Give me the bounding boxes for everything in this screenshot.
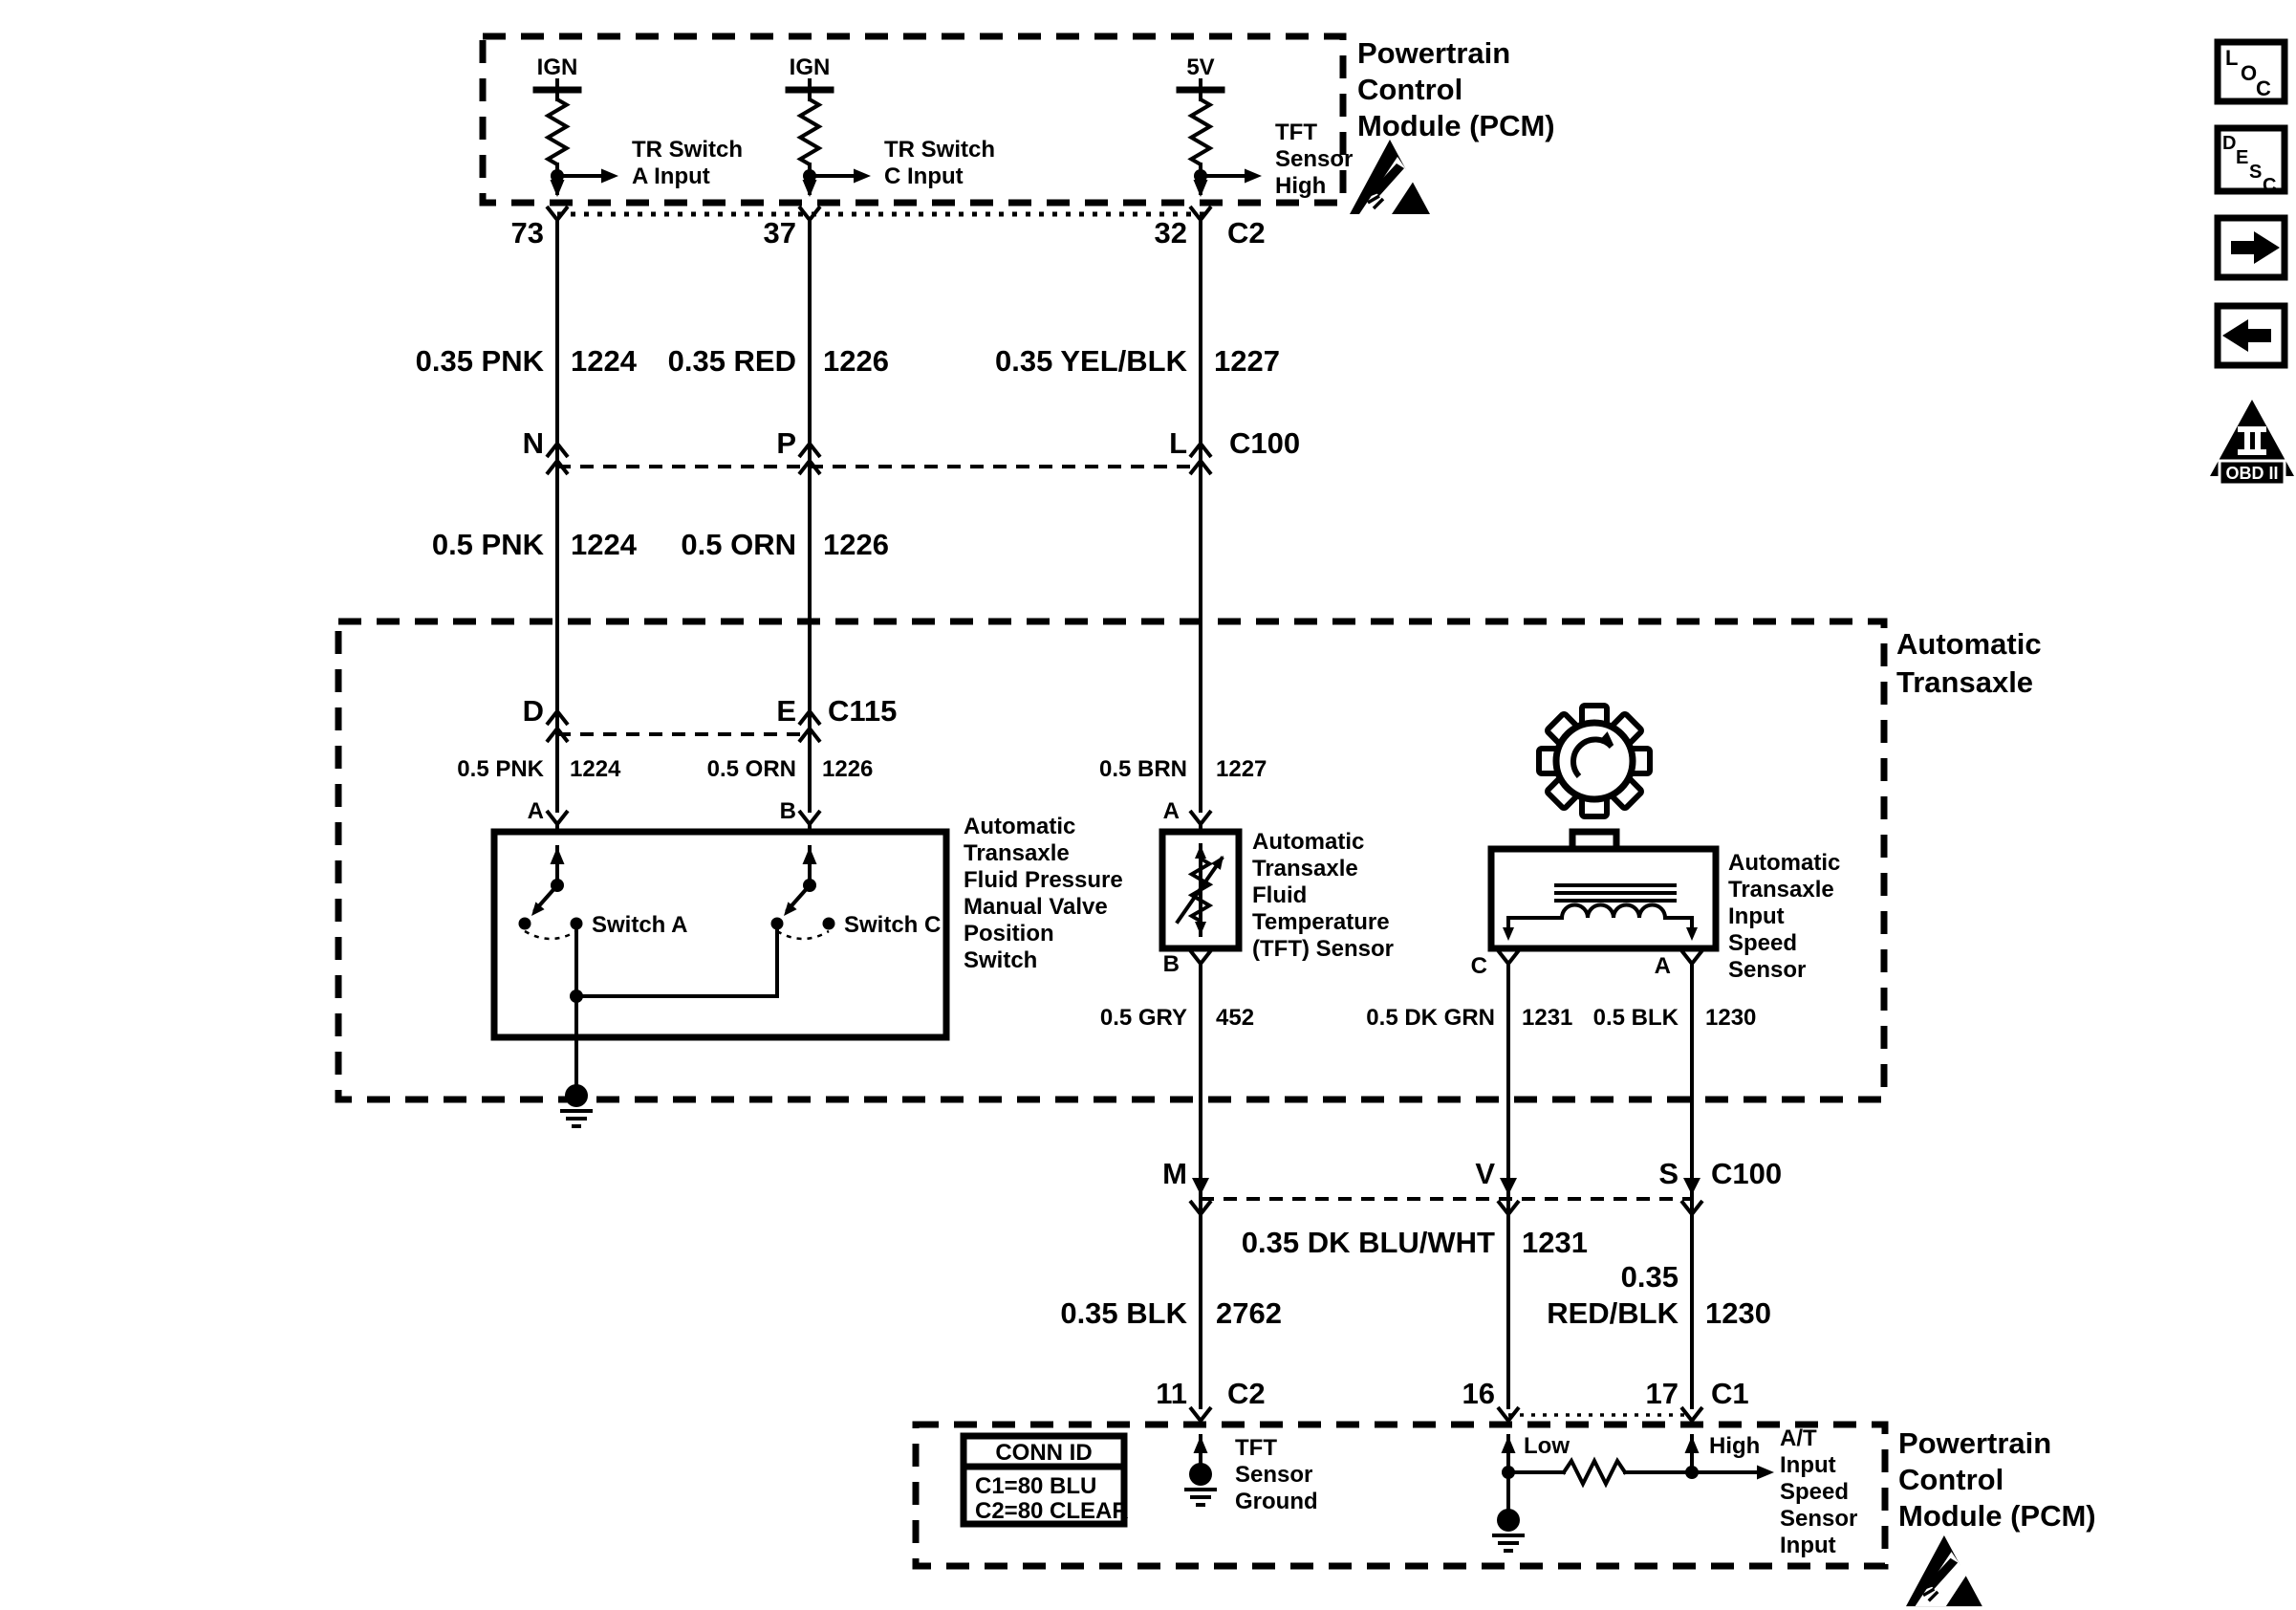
wire-color-label: 0.5 PNK (432, 528, 545, 561)
ground-icon (1492, 1509, 1525, 1551)
wire-color-label: 0.5 PNK (457, 756, 544, 782)
component-label-line: Manual Valve (964, 894, 1108, 920)
connector-id: C2 (1227, 216, 1266, 250)
automatic-transaxle-assembly: Automatic Transaxle D E C115 0.5 PNK 122… (338, 621, 2042, 1126)
wire-color-label: 0.35 PNK (416, 344, 545, 378)
conn-table-row: C1=80 BLU (975, 1473, 1096, 1499)
signal-label: Sensor (1235, 1462, 1312, 1488)
wire-color-label: 0.5 ORN (707, 756, 796, 782)
pin-letter: E (776, 694, 796, 728)
resistor-symbol (800, 99, 818, 164)
previous-button[interactable] (2218, 306, 2285, 365)
supply-label: IGN (537, 54, 578, 80)
pin-number: 17 (1646, 1377, 1679, 1410)
fluid-pressure-switch: A B Switch A Switch C (494, 798, 1123, 1126)
obd2-label: OBD II (2225, 464, 2278, 483)
component-label-line: Automatic (1252, 829, 1364, 855)
pin-number: 73 (511, 216, 544, 250)
wire-circuit-label: 1227 (1216, 756, 1267, 782)
pin-number: 16 (1462, 1377, 1495, 1410)
connector-id: C100 (1229, 426, 1300, 460)
pcm-bottom-name-line: Module (PCM) (1898, 1499, 2096, 1533)
pin-letter: S (1658, 1157, 1679, 1190)
obd2-badge: OBD II (2210, 400, 2294, 485)
esd-warning-icon (1906, 1535, 1982, 1606)
loc-letter: O (2241, 61, 2257, 85)
wire-circuit-label: 1226 (823, 528, 889, 561)
pin-letter: P (776, 426, 796, 460)
switch-label: Switch A (592, 912, 687, 938)
pin-letter: L (1169, 426, 1187, 460)
switch-label: Switch C (844, 912, 941, 938)
signal-label: TFT (1275, 120, 1317, 145)
wire-circuit-label: 2762 (1216, 1296, 1282, 1330)
ground-icon (560, 1084, 593, 1126)
component-label-line: Transaxle (1728, 877, 1834, 903)
conn-table-header: CONN ID (995, 1440, 1092, 1466)
connector-c100-lower: M V S C100 (1162, 1157, 1782, 1214)
wiring-diagram: Powertrain Control Module (PCM) IGN TR S… (0, 0, 2296, 1610)
pcm-top-name-line: Module (PCM) (1357, 109, 1555, 142)
pin-letter: N (523, 426, 544, 460)
supply-label: 5V (1186, 54, 1214, 80)
conn-id-table: CONN ID C1=80 BLU C2=80 CLEAR (964, 1436, 1129, 1524)
desc-button[interactable]: D E S C (2218, 128, 2285, 196)
wire-circuit-label: 1226 (823, 344, 889, 378)
signal-label: C Input (884, 163, 964, 189)
pcm-bottom-name-line: Control (1898, 1463, 2004, 1496)
wire-color-label: 0.35 RED (668, 344, 796, 378)
signal-label: Low (1524, 1433, 1570, 1459)
pcm-top-connector-c2: 73 37 32 C2 (511, 207, 1266, 250)
tft-sensor-ground: TFT Sensor Ground (1184, 1435, 1318, 1514)
wire-color-label: 0.5 BLK (1593, 1005, 1679, 1031)
connector-id: C1 (1711, 1377, 1749, 1410)
tft-sensor: 0.5 BRN 1227 A B Automatic Transaxle Flu… (1099, 756, 1394, 977)
desc-letter: E (2236, 147, 2248, 168)
signal-label: Ground (1235, 1489, 1318, 1514)
pcm-supply-ign-a: IGN TR Switch A Input (536, 54, 743, 197)
component-label-line: Fluid (1252, 882, 1307, 908)
signal-label: Input (1780, 1452, 1836, 1478)
wire-color-label: 0.5 ORN (681, 528, 796, 561)
signal-label: High (1709, 1433, 1760, 1459)
resistor-symbol (1191, 99, 1209, 164)
connector-id: C2 (1227, 1377, 1266, 1410)
wiring-diagram-page: Powertrain Control Module (PCM) IGN TR S… (0, 0, 2296, 1610)
signal-label: Sensor (1275, 146, 1353, 172)
pcm-top-name-line: Powertrain (1357, 36, 1510, 70)
wire-color-label: 0.35 YEL/BLK (995, 344, 1188, 378)
desc-letter: S (2249, 162, 2262, 183)
wire-circuit-label: 1224 (571, 528, 638, 561)
wire-color-label: 0.35 BLK (1060, 1296, 1187, 1330)
component-label-line: (TFT) Sensor (1252, 936, 1394, 962)
pin-letter: A (1655, 953, 1671, 979)
right-arrow-icon (2231, 231, 2280, 264)
wire-circuit-label: 1226 (822, 756, 873, 782)
gear-icon (1539, 706, 1650, 816)
component-label-line: Sensor (1728, 957, 1806, 983)
pin-letter: A (1163, 798, 1180, 824)
wire-color-label: RED/BLK (1547, 1296, 1679, 1330)
signal-label: Sensor (1780, 1506, 1857, 1532)
connector-c115: D E C115 (523, 694, 898, 742)
signal-label: Input (1780, 1533, 1836, 1558)
wire-circuit-label: 1230 (1705, 1296, 1771, 1330)
pcm-top-module: Powertrain Control Module (PCM) IGN TR S… (483, 36, 1555, 250)
pin-letter: B (1163, 951, 1180, 977)
component-label-line: Switch (964, 947, 1037, 973)
conn-table-row: C2=80 CLEAR (975, 1498, 1129, 1524)
ground-icon (1184, 1463, 1217, 1505)
pcm-supply-ign-c: IGN TR Switch C Input (789, 54, 995, 197)
desc-letter: D (2222, 133, 2236, 154)
esd-warning-icon (1350, 140, 1430, 214)
wire-circuit-label: 1231 (1522, 1005, 1572, 1031)
wire-color-label: 0.35 DK BLU/WHT (1242, 1226, 1495, 1259)
coil-symbol (1562, 905, 1665, 918)
component-label-line: Speed (1728, 930, 1797, 956)
resistor-symbol (1564, 1461, 1625, 1484)
pin-number: 37 (764, 216, 796, 250)
left-arrow-icon (2222, 319, 2271, 352)
pin-number: 11 (1156, 1377, 1187, 1410)
component-label-line: Transaxle (964, 840, 1070, 866)
transaxle-name-line: Automatic (1896, 627, 2042, 661)
wire-color-label: 0.35 (1621, 1260, 1679, 1294)
pin-letter: D (523, 694, 544, 728)
wire-circuit-label: 1224 (570, 756, 621, 782)
signal-label: High (1275, 173, 1326, 199)
resistor-symbol (548, 99, 566, 164)
component-label-line: Position (964, 921, 1054, 946)
transaxle-name-line: Transaxle (1896, 665, 2033, 699)
connector-c100-upper: N P L C100 (523, 426, 1301, 474)
pin-letter: A (528, 798, 544, 824)
pin-number: 32 (1155, 216, 1187, 250)
loc-letter: C (2256, 76, 2271, 100)
component-label-line: Temperature (1252, 909, 1390, 935)
component-label-line: Input (1728, 903, 1785, 929)
signal-label: TR Switch (884, 137, 995, 163)
signal-label: A Input (632, 163, 710, 189)
loc-letter: L (2225, 46, 2238, 70)
pin-letter: V (1475, 1157, 1495, 1190)
connector-id: C100 (1711, 1157, 1782, 1190)
pin-letter: M (1162, 1157, 1187, 1190)
signal-label: TFT (1235, 1435, 1277, 1461)
desc-letter: C (2263, 175, 2276, 196)
pin-letter: C (1471, 953, 1487, 979)
component-label-line: Automatic (1728, 850, 1840, 876)
loc-button[interactable]: L O C (2218, 42, 2285, 101)
pin-letter: B (780, 798, 796, 824)
wire-circuit-label: 1230 (1705, 1005, 1756, 1031)
wire-circuit-label: 1224 (571, 344, 638, 378)
wire-circuit-label: 452 (1216, 1005, 1254, 1031)
wire-circuit-label: 1227 (1214, 344, 1280, 378)
component-label-line: Transaxle (1252, 856, 1358, 881)
signal-label: A/T (1780, 1425, 1817, 1451)
pcm-supply-5v: 5V TFT Sensor High (1180, 54, 1353, 199)
wire-color-label: 0.5 GRY (1100, 1005, 1187, 1031)
signal-label: TR Switch (632, 137, 743, 163)
signal-label: Speed (1780, 1479, 1849, 1505)
supply-label: IGN (790, 54, 831, 80)
pcm-top-name-line: Control (1357, 73, 1462, 106)
side-toolbar: L O C D E S C OBD II (2210, 42, 2294, 485)
pcm-bottom-module: 11 C2 16 17 C1 CONN ID C1=80 BLU C2=80 C… (916, 1377, 2096, 1606)
connector-id: C115 (828, 694, 897, 728)
wire-color-label: 0.5 BRN (1099, 756, 1187, 782)
wire-color-label: 0.5 DK GRN (1366, 1005, 1495, 1031)
speed-sensor-input-circuit: Low High A/T Input Speed Sensor Input (1492, 1425, 1857, 1558)
component-label-line: Automatic (964, 814, 1075, 839)
wire-circuit-label: 1231 (1522, 1226, 1588, 1259)
pcm-bottom-name-line: Powertrain (1898, 1426, 2051, 1460)
next-button[interactable] (2218, 218, 2285, 277)
input-speed-sensor: C A Automatic Transaxle Input Speed Sens… (1471, 706, 1841, 983)
component-label-line: Fluid Pressure (964, 867, 1123, 893)
